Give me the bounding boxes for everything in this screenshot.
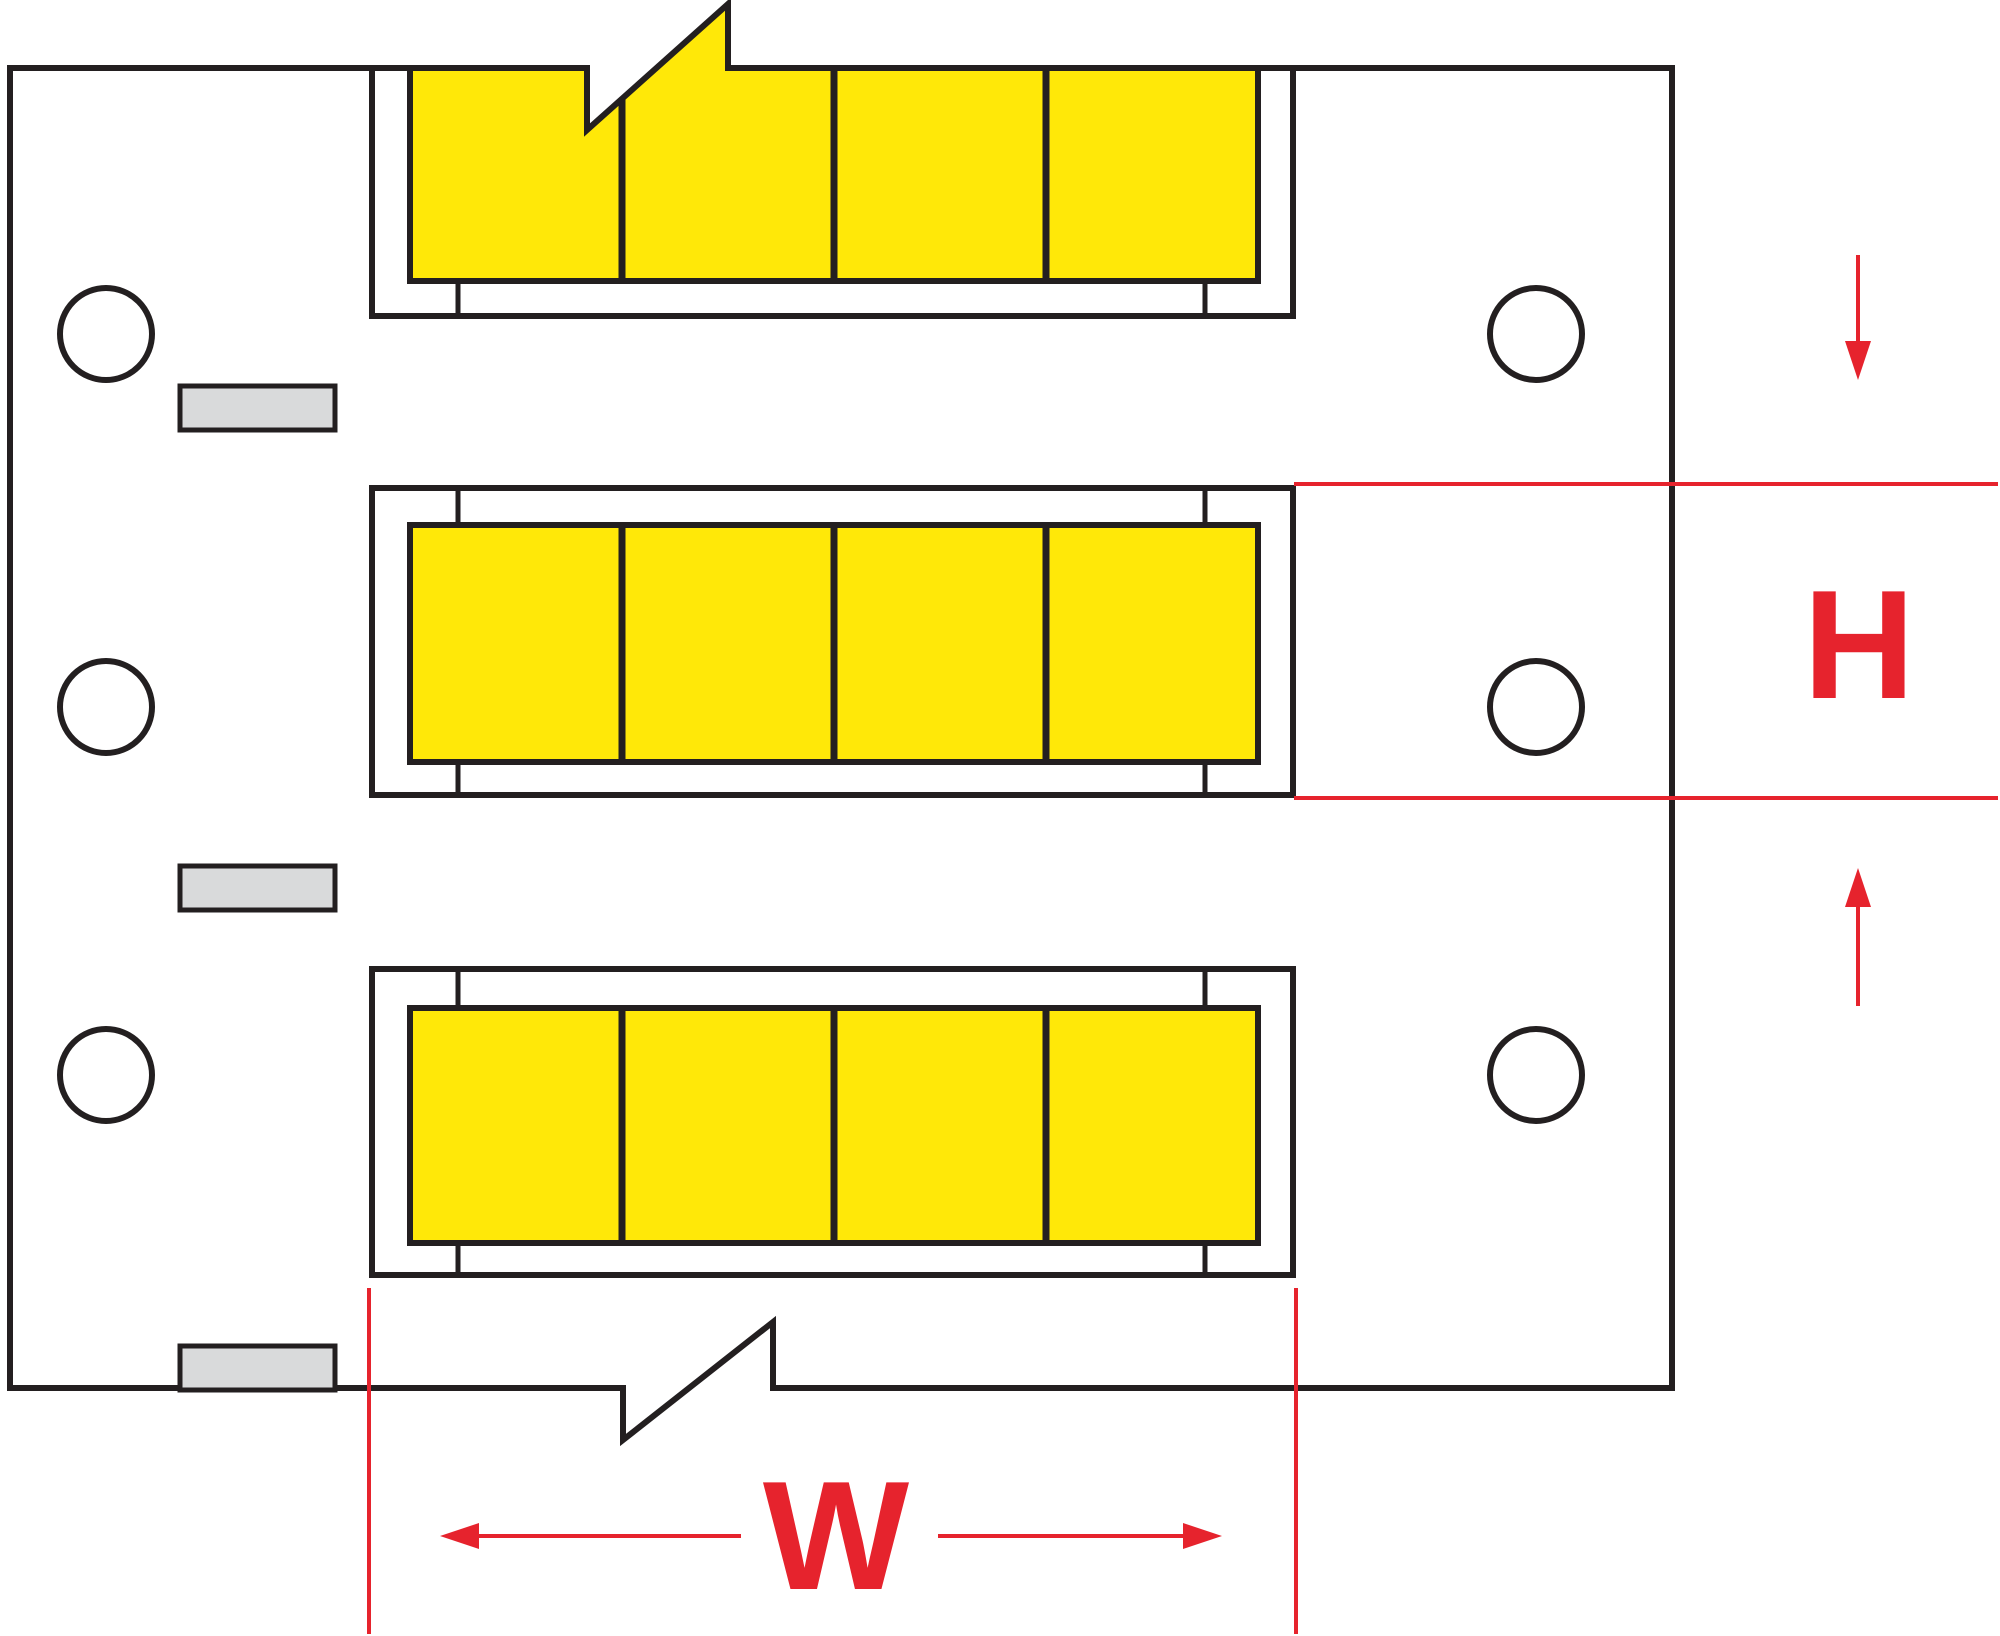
sleeve-row-bottom: [372, 969, 1293, 1275]
diagram-canvas: H W: [0, 0, 2000, 1636]
liner-tab: [180, 1346, 335, 1390]
liner-tab: [180, 866, 335, 910]
liner-tab: [180, 386, 335, 430]
sleeve-dimension-diagram: H W: [0, 0, 2000, 1636]
height-label: H: [1803, 558, 1915, 731]
feed-hole: [60, 661, 152, 753]
feed-hole: [1490, 288, 1582, 380]
sleeve-row-middle: [372, 488, 1293, 795]
feed-hole: [1490, 1029, 1582, 1121]
width-label: W: [763, 1449, 910, 1622]
feed-hole: [1490, 661, 1582, 753]
feed-hole: [60, 288, 152, 380]
feed-hole: [60, 1029, 152, 1121]
